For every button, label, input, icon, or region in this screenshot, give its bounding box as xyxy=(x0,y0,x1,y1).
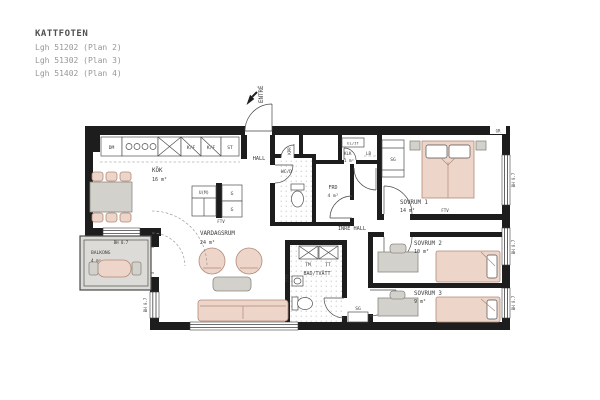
label-ftv-sovrum1: FTV xyxy=(441,208,449,213)
label-bh-right-2: BH 0.7 xyxy=(511,239,516,254)
label-frd-area: 4 m² xyxy=(327,193,338,199)
entrance-door xyxy=(245,104,272,131)
sg-closet-corridor xyxy=(348,312,368,322)
label-klk-area: 1 m² xyxy=(344,158,354,163)
toilet-tank xyxy=(291,184,304,190)
label-vardagsrum-area: 24 m² xyxy=(200,240,215,246)
label-bh-right-1: BH 0.7 xyxy=(511,172,516,187)
label-tm: TM xyxy=(305,262,311,268)
kitchen-counter xyxy=(100,137,240,162)
window-sovrum3 xyxy=(502,288,510,318)
label-sg-2: SG xyxy=(355,306,361,312)
label-sovrum3-area: 9 m² xyxy=(414,299,426,305)
label-bh-right-3: BH 0.7 xyxy=(511,295,516,310)
label-elit: EL/IT xyxy=(347,141,359,146)
label-bh-left: BH 0.7 xyxy=(143,297,148,312)
label-hall: HALL xyxy=(253,156,266,162)
label-kf-2: K/F xyxy=(207,145,216,151)
balcony-table xyxy=(97,260,131,277)
label-kok: KÖK xyxy=(152,167,163,174)
label-klk: KLK xyxy=(344,151,352,156)
label-dm: DM xyxy=(109,145,115,151)
label-sovrum2-area: 10 m² xyxy=(414,249,429,255)
chair-2 xyxy=(390,244,406,253)
frd-door xyxy=(330,196,352,218)
label-kpr: KPR xyxy=(287,147,292,155)
label-sovrum3: SOVRUM 3 xyxy=(414,291,442,297)
entrance-arrow xyxy=(247,92,258,105)
armchair-1 xyxy=(199,248,225,274)
nightstand-left xyxy=(410,141,420,150)
label-bh-balcony: BH 0.7 xyxy=(114,240,129,245)
label-lb: LB xyxy=(366,151,372,156)
label-inre-hall: INRE HALL xyxy=(338,226,366,232)
label-ftv-bad: FTV xyxy=(285,274,290,282)
wcd-fixtures xyxy=(291,184,304,207)
label-wcd: WC/D xyxy=(281,169,292,175)
label-um: U(M) xyxy=(199,190,209,195)
window-livingroom-left xyxy=(150,292,159,318)
toilet-bowl-2 xyxy=(298,298,313,310)
window-kitchen-balcony xyxy=(103,228,140,236)
label-sg-1: SG xyxy=(390,157,396,163)
label-g-1: G xyxy=(231,191,234,197)
balcony-chair-1 xyxy=(89,262,98,275)
label-sovrum1: SOVRUM 1 xyxy=(400,200,428,206)
entrance-label: ENTRÉ xyxy=(257,85,265,103)
label-frd: FRD xyxy=(328,185,337,191)
label-balkong: BALKONG xyxy=(91,250,111,256)
innerhall-door xyxy=(354,168,376,190)
label-sovrum1-area: 14 m² xyxy=(400,208,415,214)
desk-3 xyxy=(378,298,418,316)
window-sovrum1 xyxy=(502,155,510,205)
living-furniture xyxy=(152,211,288,321)
label-g-2: G xyxy=(231,207,234,213)
coffee-table xyxy=(213,277,251,291)
label-sovrum2: SOVRUM 2 xyxy=(414,241,442,247)
label-bad: BAD/TVÄTT xyxy=(303,270,330,277)
label-st: ST xyxy=(227,145,233,151)
label-gr: GR xyxy=(496,129,501,134)
balcony-chair-2 xyxy=(132,262,141,275)
chair-3 xyxy=(390,291,405,299)
label-ftv-hall: FTV xyxy=(217,219,225,224)
label-balkong-area: 4 m² xyxy=(91,258,101,263)
desk-2 xyxy=(378,252,418,272)
dining-set xyxy=(90,172,132,222)
bedroom2-furniture xyxy=(378,244,500,282)
window-sovrum2 xyxy=(502,228,510,265)
toilet-tank-2 xyxy=(292,297,298,310)
toilet-bowl xyxy=(292,191,304,207)
floor-plan-svg: ENTRÉ DM K/F K/F ST KÖK 16 m² HALL KPR W… xyxy=(0,0,600,400)
label-kok-area: 16 m² xyxy=(152,177,167,183)
window-livingroom-bottom xyxy=(190,322,298,330)
label-kf-1: K/F xyxy=(187,145,196,151)
armchair-2 xyxy=(236,248,262,274)
label-vardagsrum: VARDAGSRUM xyxy=(200,231,235,237)
nightstand-right xyxy=(476,141,486,150)
label-tt: TT xyxy=(325,262,331,268)
